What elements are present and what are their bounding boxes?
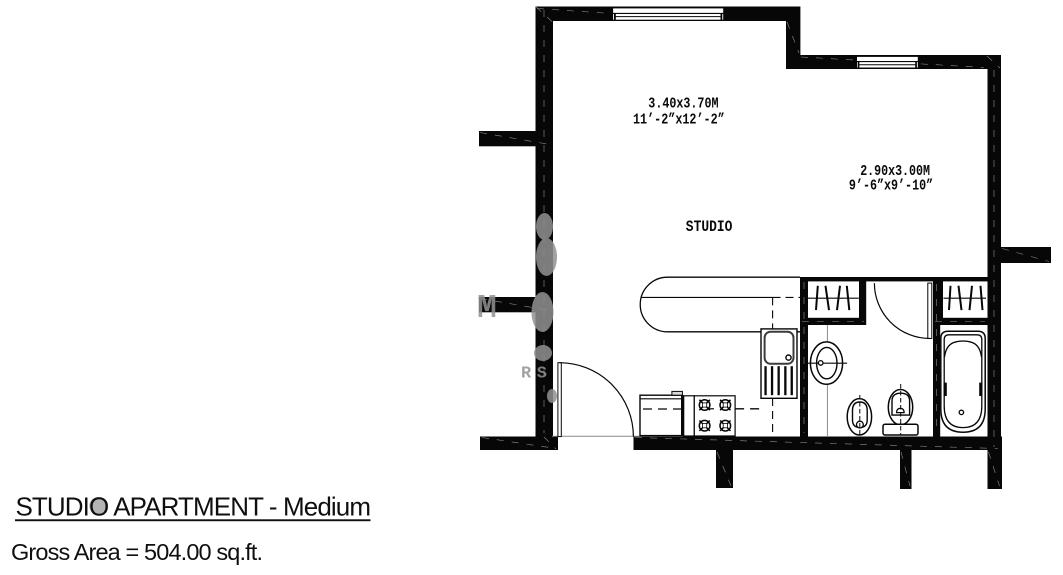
svg-text:11’-2”x12’-2”: 11’-2”x12’-2” <box>633 112 725 129</box>
svg-text:9’-6”x9’-10”: 9’-6”x9’-10” <box>849 178 933 195</box>
svg-text:Gross Area = 504.00 sq.ft.: Gross Area = 504.00 sq.ft. <box>11 539 263 565</box>
svg-text:STUDIO APARTMENT - Medium: STUDIO APARTMENT - Medium <box>16 491 372 521</box>
svg-text:STUDIO: STUDIO <box>686 219 733 237</box>
svg-text:3.40x3.70M: 3.40x3.70M <box>648 96 718 113</box>
svg-text:M: M <box>477 290 497 327</box>
